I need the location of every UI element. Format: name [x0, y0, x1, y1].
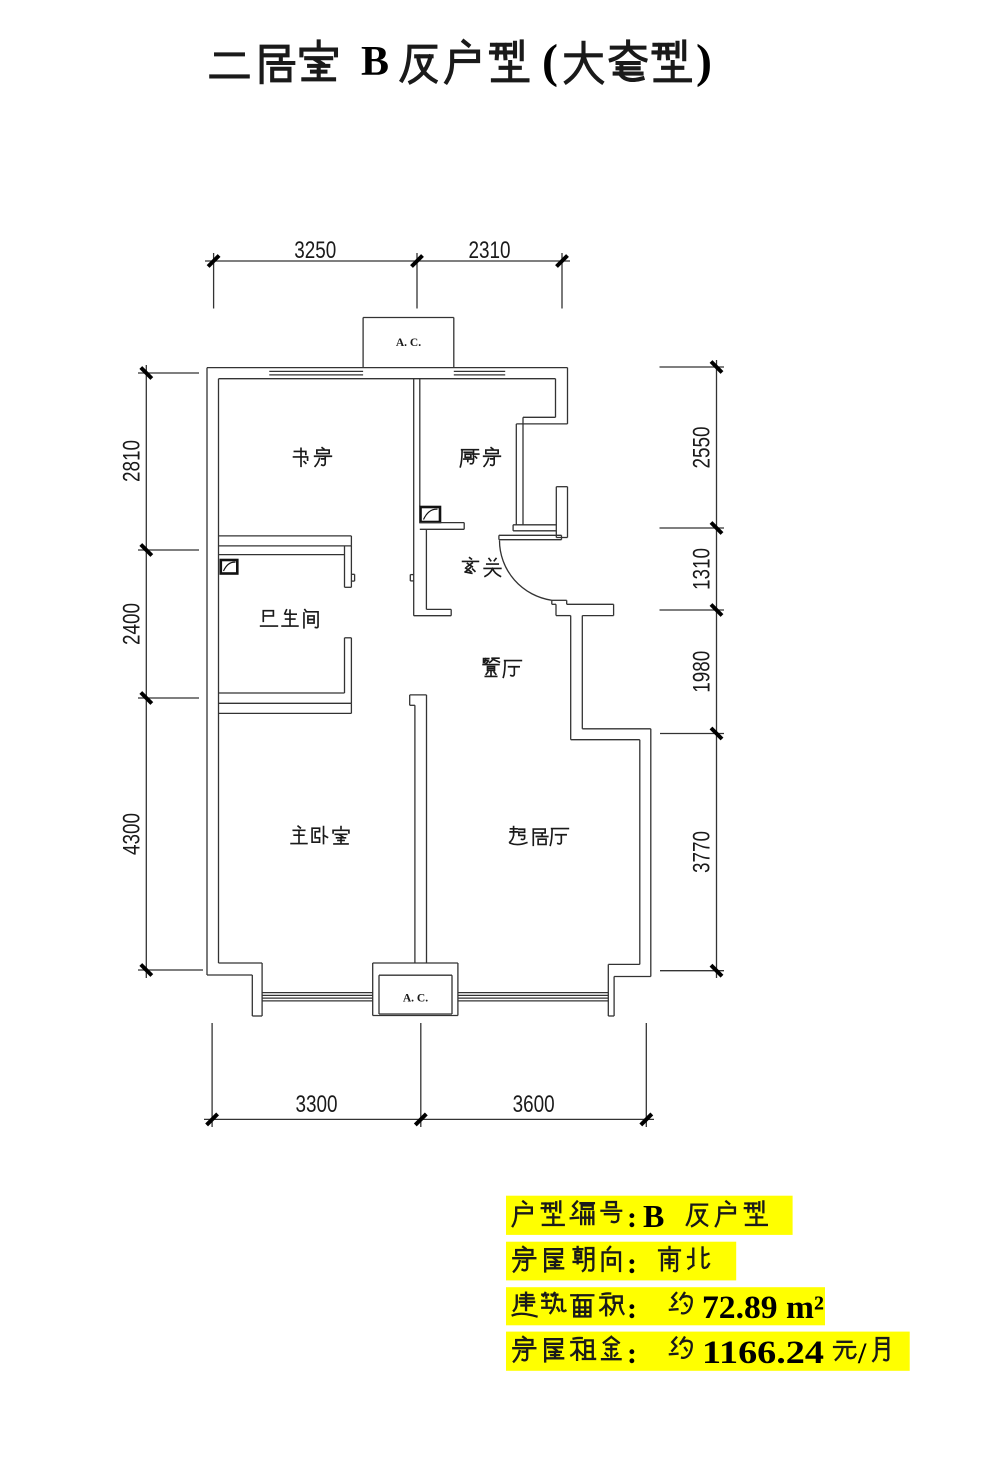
- svg-text::: :: [627, 1201, 637, 1234]
- svg-text:3250: 3250: [294, 237, 336, 264]
- svg-text:B: B: [643, 1198, 664, 1234]
- svg-text:2400: 2400: [119, 603, 146, 645]
- svg-text:1980: 1980: [689, 651, 716, 693]
- svg-text:2550: 2550: [689, 427, 716, 469]
- svg-text:B: B: [361, 39, 389, 85]
- svg-text:1166.24: 1166.24: [702, 1335, 824, 1371]
- svg-text::: :: [627, 1292, 637, 1325]
- svg-text:A. C.: A. C.: [403, 993, 428, 1005]
- svg-text::: :: [627, 1337, 637, 1370]
- svg-text:2310: 2310: [469, 237, 511, 264]
- svg-text:3600: 3600: [513, 1091, 555, 1118]
- svg-text:A. C.: A. C.: [396, 337, 421, 349]
- svg-text:(: (: [542, 35, 558, 88]
- svg-text:2810: 2810: [119, 440, 146, 482]
- svg-text:1310: 1310: [689, 548, 716, 590]
- svg-text::: :: [627, 1247, 637, 1280]
- svg-text:4300: 4300: [119, 813, 146, 855]
- svg-text:3770: 3770: [689, 831, 716, 873]
- svg-text:3300: 3300: [296, 1091, 338, 1118]
- svg-text:/: /: [857, 1337, 867, 1370]
- svg-text:): ): [696, 35, 712, 88]
- svg-text:72.89 m²: 72.89 m²: [702, 1290, 824, 1326]
